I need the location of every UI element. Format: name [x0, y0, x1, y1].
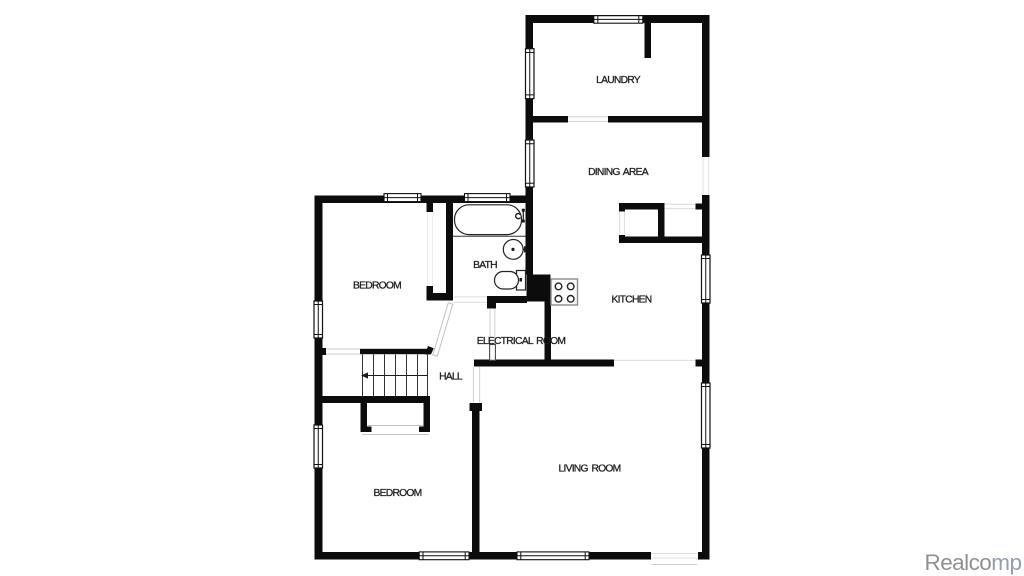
svg-text:Realcomp: Realcomp [925, 550, 1022, 575]
svg-text:HALL: HALL [439, 372, 463, 383]
svg-text:LIVING ROOM: LIVING ROOM [558, 463, 620, 474]
svg-text:ELECTRICAL ROOM: ELECTRICAL ROOM [477, 336, 566, 347]
svg-text:DINING AREA: DINING AREA [588, 167, 649, 178]
svg-text:BEDROOM: BEDROOM [374, 488, 422, 499]
svg-text:LAUNDRY: LAUNDRY [596, 75, 641, 86]
svg-text:KITCHEN: KITCHEN [612, 295, 652, 306]
svg-text:BEDROOM: BEDROOM [353, 280, 401, 291]
svg-text:BATH: BATH [473, 260, 497, 271]
